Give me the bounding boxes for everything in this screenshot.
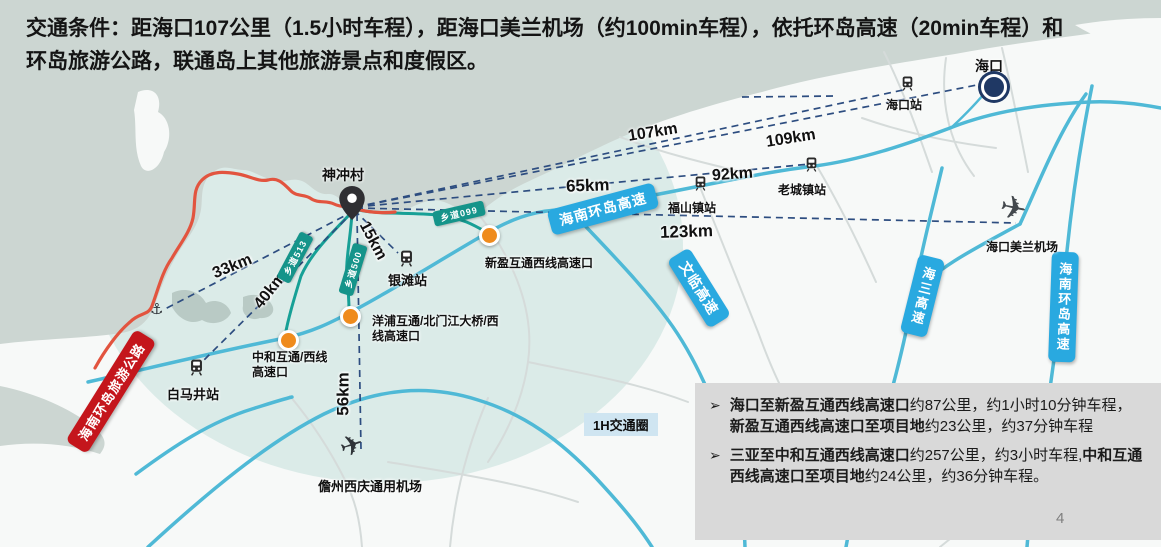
distance-92km: 92km (711, 165, 753, 186)
village-label: 神冲村 (322, 165, 364, 185)
interchange-dot-yangpu (340, 306, 361, 327)
distance-56km: 56km (334, 372, 354, 415)
train-station-icon (399, 250, 414, 267)
station-label-yintan: 银滩站 (388, 270, 427, 289)
slide: 交通条件：距海口107公里（1.5小时车程），距海口美兰机场（约100min车程… (0, 0, 1161, 547)
note-item: ➢ 海口至新盈互通西线高速口约87公里，约1小时10分钟车程，新盈互通西线高速口… (709, 396, 1145, 437)
notes-panel: ➢ 海口至新盈互通西线高速口约87公里，约1小时10分钟车程，新盈互通西线高速口… (695, 383, 1161, 540)
station-label-fushan: 福山镇站 (668, 199, 716, 216)
bullet-arrow-icon: ➢ (709, 396, 721, 437)
interchange-label-zhonghe: 中和互通/西线高速口 (252, 350, 334, 380)
train-station-icon (805, 157, 818, 172)
note-text: 三亚至中和互通西线高速口约257公里，约3小时车程,中和互通西线高速口至项目地约… (730, 446, 1145, 487)
note-item: ➢ 三亚至中和互通西线高速口约257公里，约3小时车程,中和互通西线高速口至项目… (709, 446, 1145, 487)
interchange-dot-xinying (479, 225, 500, 246)
station-label-haikou: 海口站 (886, 96, 922, 113)
distance-65km: 65km (566, 175, 610, 197)
interchange-label-yangpu: 洋浦互通/北门江大桥/西线高速口 (372, 314, 504, 344)
location-pin-icon (339, 186, 365, 225)
one-hour-circle-label: 1H交通圈 (584, 413, 658, 436)
note-text: 海口至新盈互通西线高速口约87公里，约1小时10分钟车程，新盈互通西线高速口至项… (730, 396, 1145, 437)
interchange-label-xinying: 新盈互通西线高速口 (485, 254, 593, 271)
airport-label-meilan: 海口美兰机场 (986, 238, 1058, 255)
train-station-icon (189, 359, 204, 376)
distance-123km: 123km (660, 221, 714, 243)
airport-label-danzhou: 儋州西庆通用机场 (318, 476, 422, 495)
expressway-label-huandao-east: 海南环岛高速 (1048, 252, 1079, 363)
station-label-baimajing: 白马井站 (167, 384, 219, 403)
train-station-icon (901, 76, 914, 91)
bullet-arrow-icon: ➢ (709, 446, 721, 487)
page-number: 4 (1056, 510, 1064, 527)
train-station-icon (694, 176, 707, 191)
interchange-dot-zhonghe (278, 330, 299, 351)
anchor-icon: ⚓ (150, 300, 163, 318)
station-label-laocheng: 老城镇站 (778, 181, 826, 198)
slide-title: 交通条件：距海口107公里（1.5小时车程），距海口美兰机场（约100min车程… (26, 13, 1066, 78)
